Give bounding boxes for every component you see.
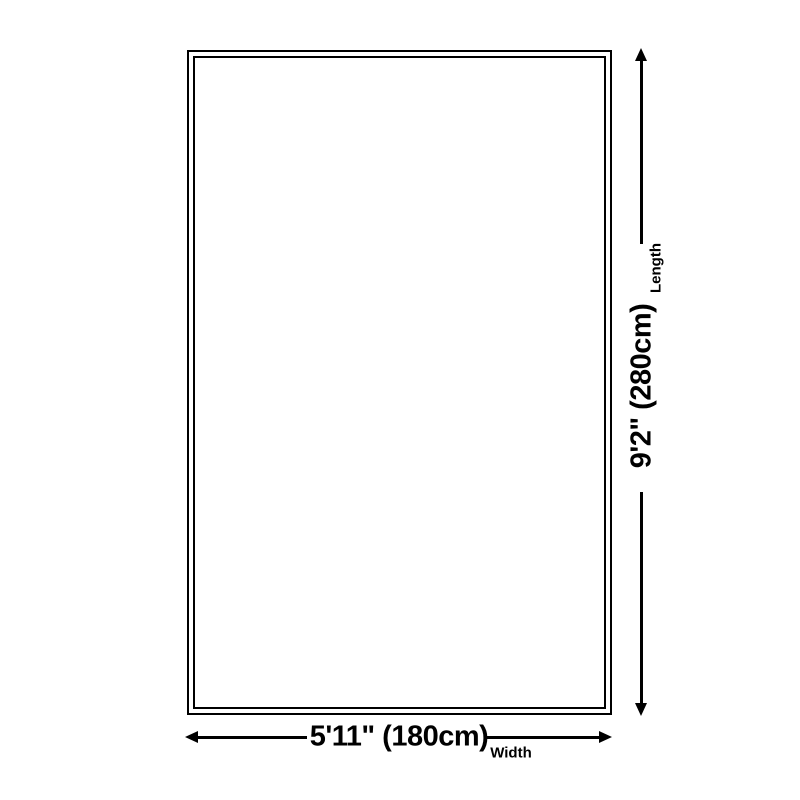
length-axis-label: Length <box>649 243 664 293</box>
length-arrow-shaft-upper <box>640 59 643 244</box>
width-arrow-shaft-right <box>487 736 599 739</box>
width-axis-label: Width <box>490 746 532 761</box>
rug-outline-outer <box>187 50 612 715</box>
length-arrow-shaft-lower <box>640 492 643 704</box>
arrow-down-icon <box>635 703 647 716</box>
rug-outline-inner <box>193 56 606 709</box>
rug-dimension-diagram: Length 9'2" (280cm) 5'11" (180cm) Width <box>0 0 800 800</box>
width-dimension-value: 5'11" (180cm) <box>310 723 489 752</box>
length-dimension-value: 9'2" (280cm) <box>628 304 657 469</box>
width-arrow-shaft-left <box>197 736 307 739</box>
arrow-right-icon <box>599 731 612 743</box>
